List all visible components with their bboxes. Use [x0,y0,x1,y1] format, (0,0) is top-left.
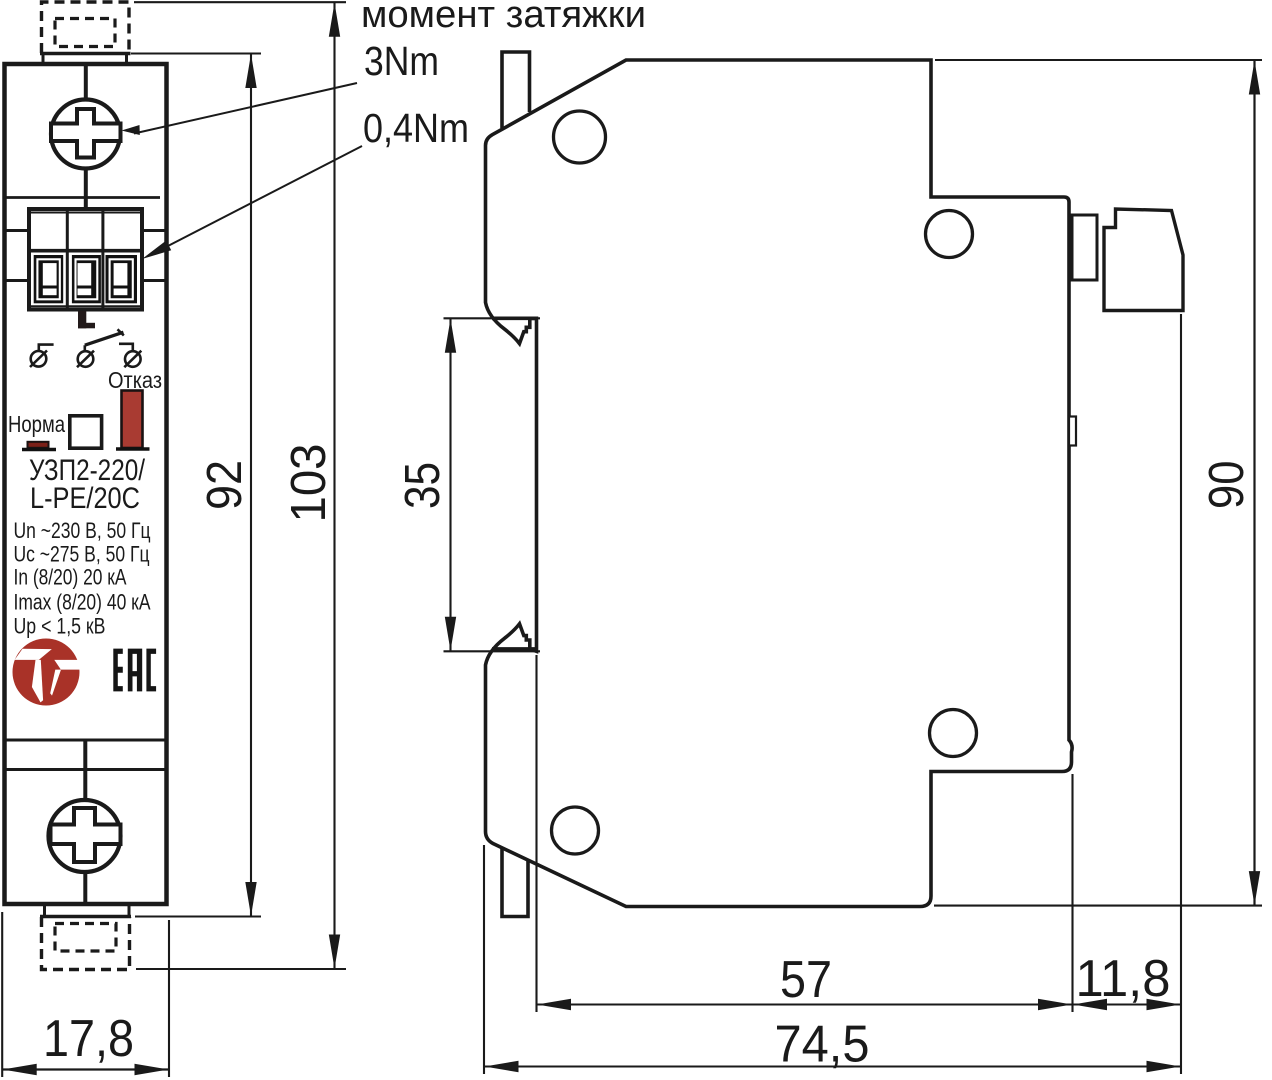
svg-text:Uc ~275 В, 50 Гц: Uc ~275 В, 50 Гц [14,542,150,567]
svg-text:57: 57 [780,950,832,1008]
svg-text:90: 90 [1200,461,1254,510]
svg-text:74,5: 74,5 [775,1015,870,1073]
svg-text:Up < 1,5 кВ: Up < 1,5 кВ [14,614,106,639]
svg-text:92: 92 [198,460,252,510]
svg-text:35: 35 [396,462,450,509]
svg-text:Норма: Норма [8,411,65,437]
svg-text:Un ~230 В, 50 Гц: Un ~230 В, 50 Гц [14,518,151,543]
svg-text:In (8/20) 20 кА: In (8/20) 20 кА [14,565,127,590]
svg-text:17,8: 17,8 [43,1009,134,1067]
svg-text:3Nm: 3Nm [364,38,439,84]
svg-text:103: 103 [282,444,336,523]
svg-text:Отказ: Отказ [108,367,162,393]
svg-text:L-PE/20C: L-PE/20C [30,482,140,515]
svg-text:момент затяжки: момент затяжки [361,0,646,36]
svg-text:Imax (8/20) 40 кА: Imax (8/20) 40 кА [14,590,151,615]
svg-text:0,4Nm: 0,4Nm [363,105,469,151]
svg-text:11,8: 11,8 [1076,949,1171,1007]
